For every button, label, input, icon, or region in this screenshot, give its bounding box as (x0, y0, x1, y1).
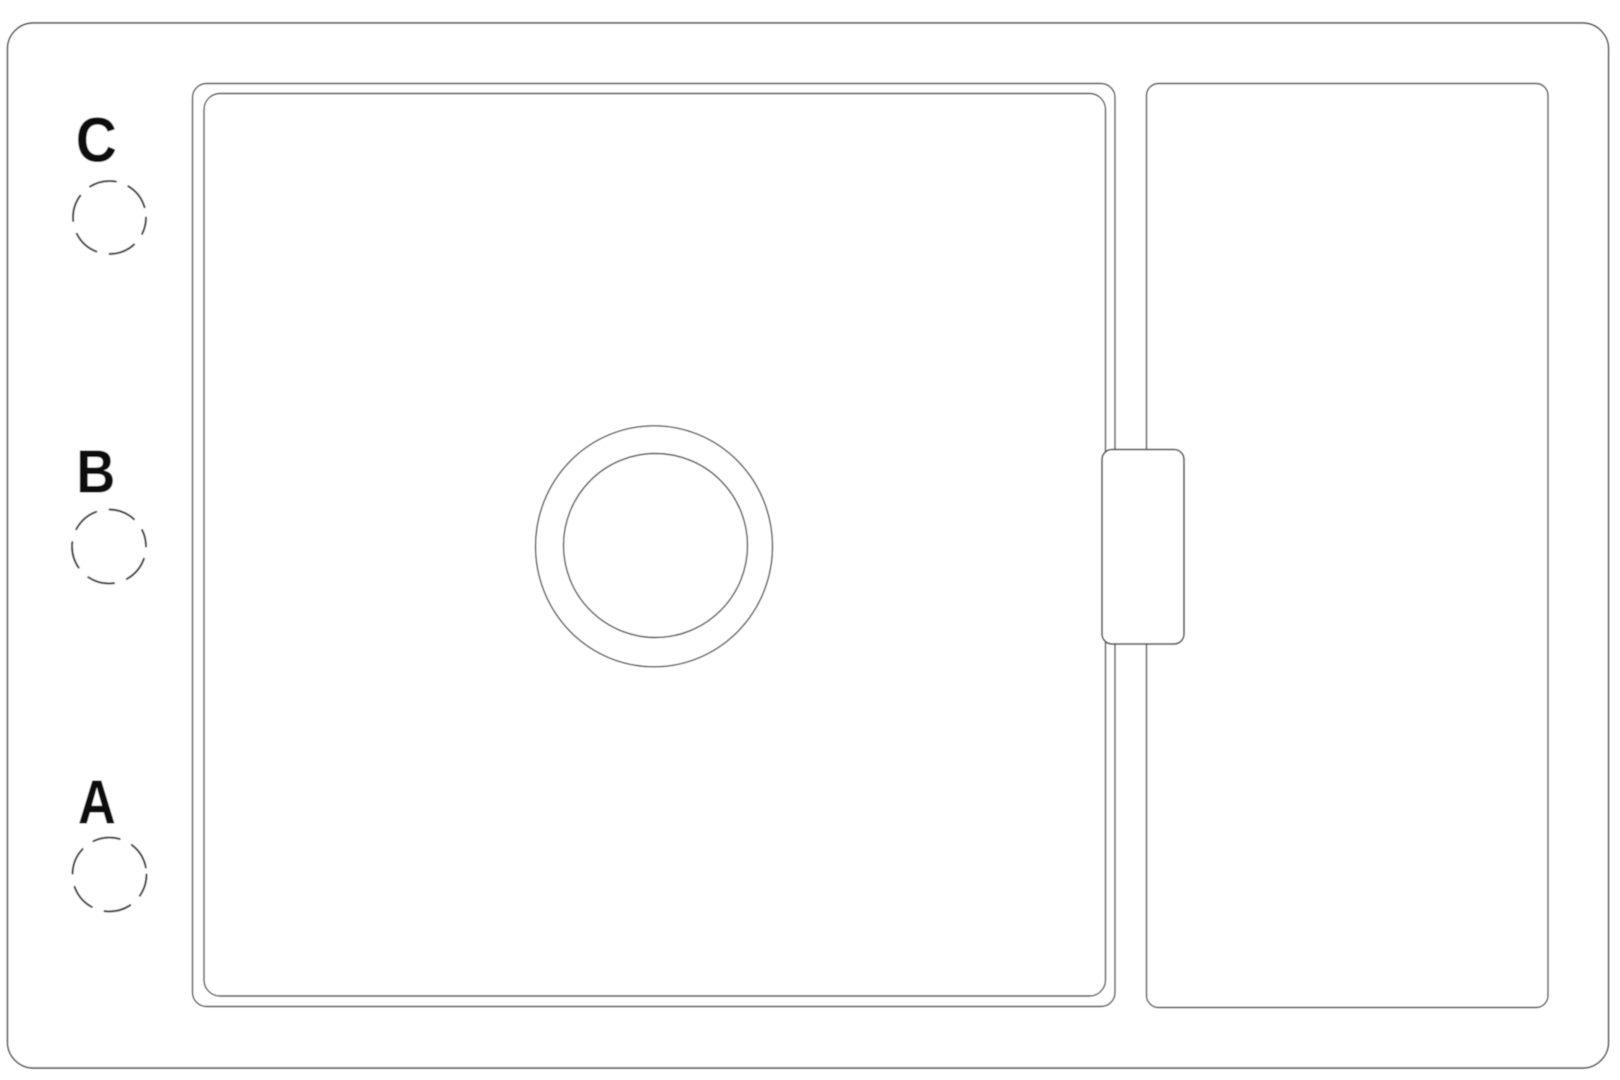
svg-text:B: B (76, 439, 115, 507)
svg-text:C: C (76, 105, 117, 175)
svg-text:A: A (78, 769, 116, 838)
